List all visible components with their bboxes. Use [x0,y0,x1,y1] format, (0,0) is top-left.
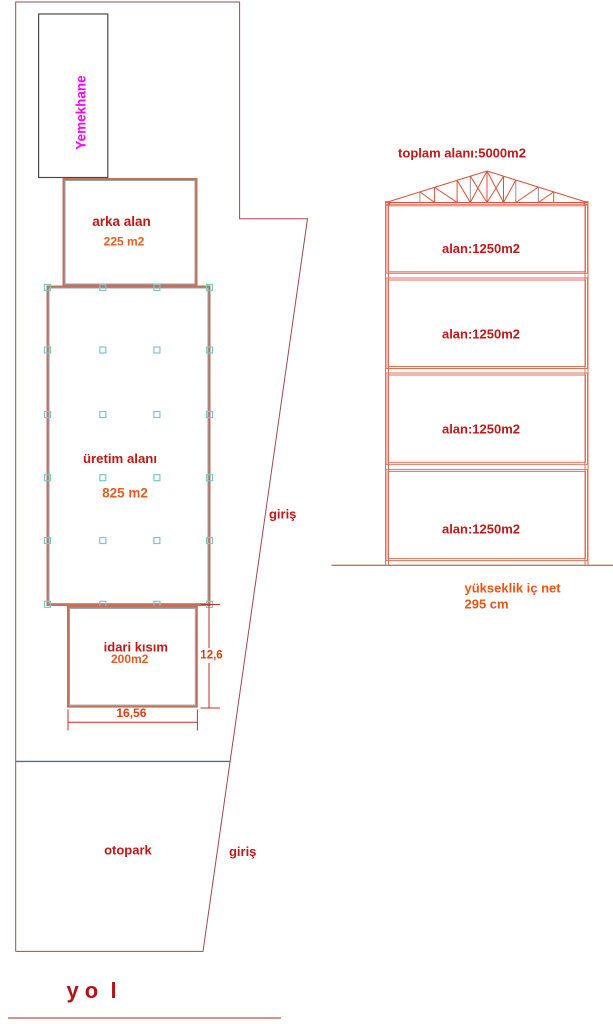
svg-text:200m2: 200m2 [111,652,149,666]
svg-text:alan:1250m2: alan:1250m2 [442,241,520,256]
svg-text:giriş: giriş [269,507,296,522]
svg-text:otopark: otopark [104,842,152,857]
svg-text:Yemekhane: Yemekhane [74,75,89,150]
svg-text:toplam alanı:5000m2: toplam alanı:5000m2 [398,146,526,161]
svg-text:825 m2: 825 m2 [102,486,148,501]
svg-text:12,6: 12,6 [200,650,222,662]
svg-text:225 m2: 225 m2 [104,235,145,249]
svg-text:arka alan: arka alan [92,214,151,229]
svg-text:giriş: giriş [229,844,256,859]
svg-text:alan:1250m2: alan:1250m2 [442,521,520,536]
svg-text:yükseklik iç net: yükseklik iç net [465,581,562,596]
svg-text:295 cm: 295 cm [465,597,509,612]
svg-text:16,56: 16,56 [116,706,146,720]
svg-text:alan:1250m2: alan:1250m2 [442,422,520,437]
svg-text:y o l: y o l [66,978,116,1003]
svg-text:alan:1250m2: alan:1250m2 [442,326,520,341]
svg-text:üretim alanı: üretim alanı [83,451,157,466]
